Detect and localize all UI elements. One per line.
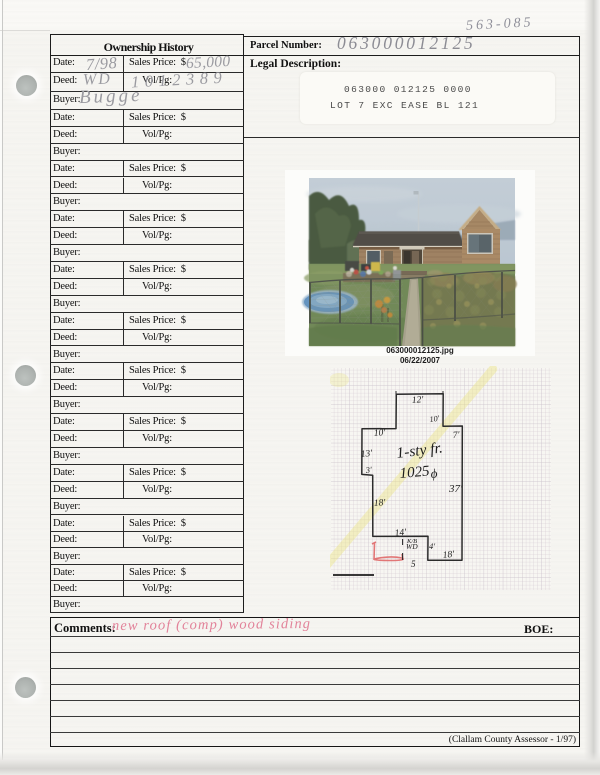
svg-text:14′: 14′ <box>394 528 407 539</box>
svg-text:3′: 3′ <box>364 464 372 475</box>
svg-text:18′: 18′ <box>374 498 387 509</box>
svg-text:4′: 4′ <box>429 541 435 551</box>
svg-text:5: 5 <box>411 559 416 569</box>
svg-text:1025: 1025 <box>399 463 431 482</box>
svg-text:37′: 37′ <box>448 483 463 495</box>
svg-text:18′: 18′ <box>442 550 455 561</box>
svg-text:12′: 12′ <box>412 395 425 406</box>
svg-text:13′: 13′ <box>360 449 373 460</box>
svg-text:WD: WD <box>406 542 418 551</box>
svg-text:10′: 10′ <box>429 414 440 424</box>
svg-text:10′: 10′ <box>374 428 387 439</box>
